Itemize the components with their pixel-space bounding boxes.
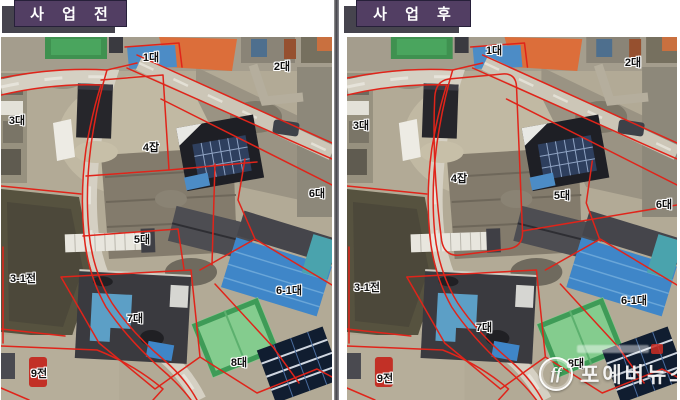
parcel-label: 6대 <box>656 196 672 212</box>
parcel-label: 3-1전 <box>10 270 36 286</box>
header-before: 사 업 전 <box>14 0 127 27</box>
header-after-label: 사 업 후 <box>373 3 458 24</box>
parcel-label: 1대 <box>143 49 159 65</box>
parcel-label: 7대 <box>476 319 492 335</box>
watermark-name: 포에버뉴스 <box>580 359 677 389</box>
parcel-label: 6대 <box>309 185 325 201</box>
parcel-label: 9전 <box>377 370 393 386</box>
parcel-label: 7대 <box>127 310 143 326</box>
parcel-labels-before: 1대2대3대4잡5대6대6-1대7대8대9전3-1전 <box>1 37 332 400</box>
parcel-label: 3대 <box>9 112 25 128</box>
header-before-label: 사 업 전 <box>30 3 115 24</box>
parcel-label: 5대 <box>134 231 150 247</box>
watermark-tagline <box>577 345 649 353</box>
parcel-label: 4잡 <box>451 170 467 186</box>
header-after: 사 업 후 <box>356 0 471 27</box>
parcel-label: 6-1대 <box>276 282 302 298</box>
watermark-tagline-badge <box>651 344 663 354</box>
figure-before-after-aerial-maps: 사 업 전 사 업 후 <box>0 0 680 400</box>
parcel-label: 2대 <box>625 54 641 70</box>
parcel-label: 3-1전 <box>354 279 380 295</box>
parcel-label: 4잡 <box>143 139 159 155</box>
parcel-label: 8대 <box>231 354 247 370</box>
map-panel-after: 1대2대3대4잡5대6대6-1대7대8대9전3-1전 ff 포에버뉴스 <box>347 37 677 400</box>
parcel-label: 5대 <box>554 187 570 203</box>
parcel-label: 6-1대 <box>621 292 647 308</box>
panel-divider <box>334 0 339 400</box>
map-panel-before: 1대2대3대4잡5대6대6-1대7대8대9전3-1전 <box>1 37 332 400</box>
parcel-label: 9전 <box>31 365 47 381</box>
forever-news-logo-icon: ff <box>539 357 573 391</box>
parcel-label: 2대 <box>274 58 290 74</box>
parcel-label: 3대 <box>353 117 369 133</box>
parcel-label: 1대 <box>486 42 502 58</box>
